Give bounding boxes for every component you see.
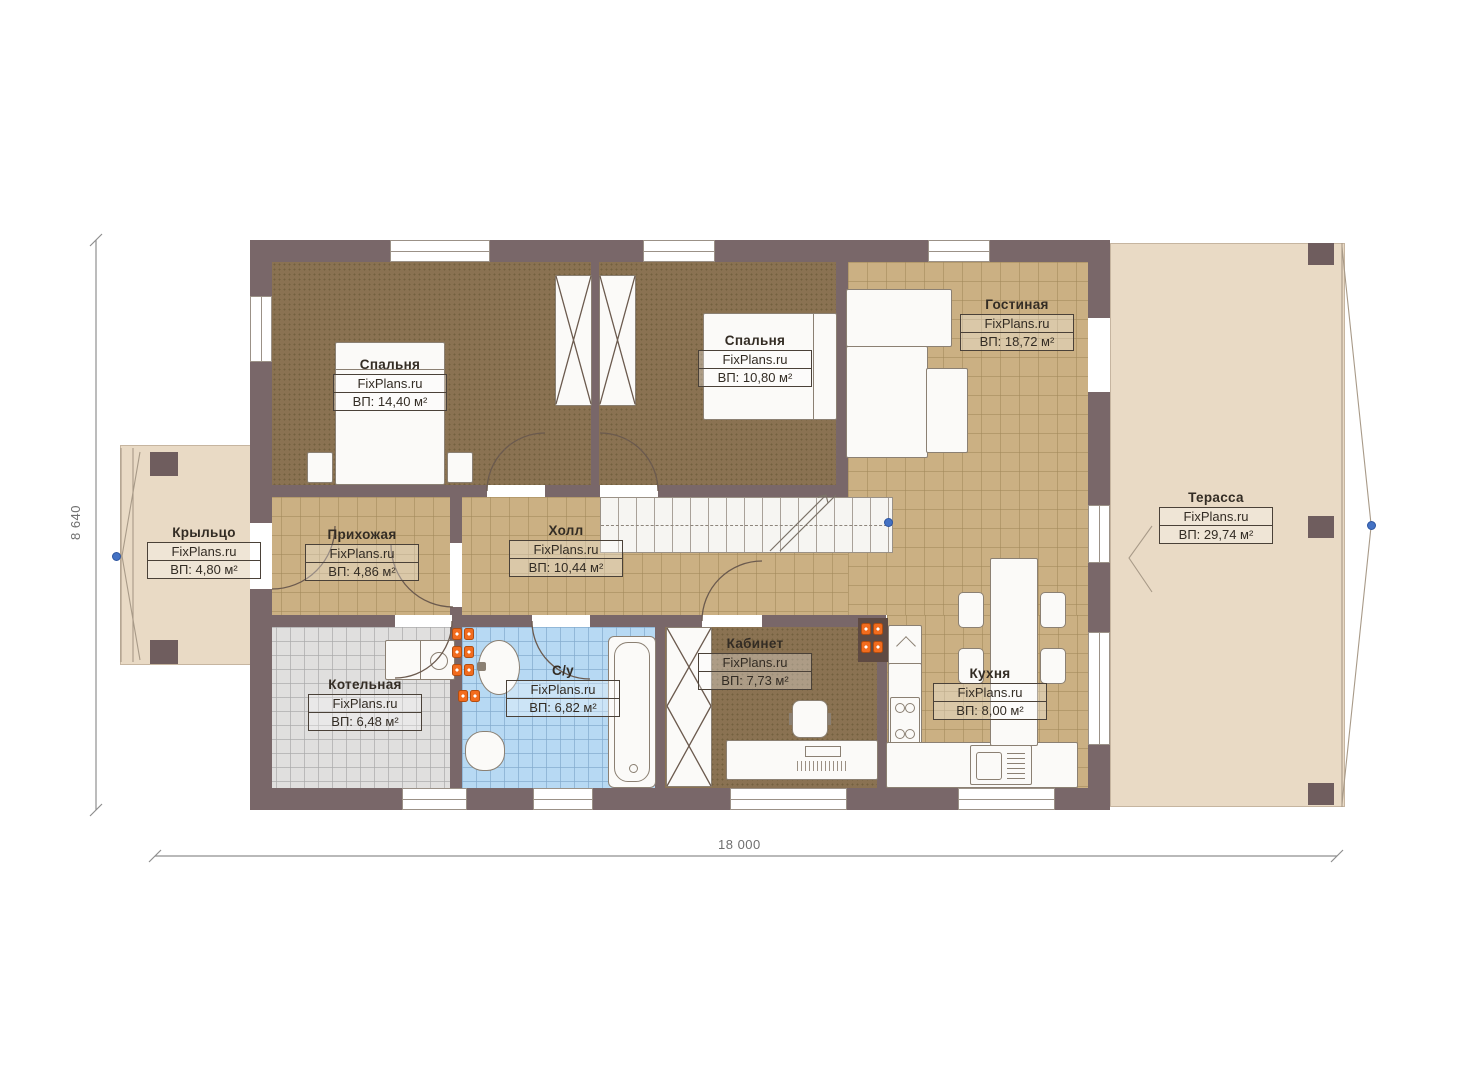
- room-area: ВП: 10,80 м²: [699, 369, 811, 386]
- terrace-post: [1308, 243, 1334, 265]
- room-area: ВП: 6,82 м²: [507, 699, 619, 716]
- chair: [958, 592, 984, 628]
- door-opening-bathroom: [532, 615, 590, 627]
- room-name: С/у: [506, 663, 620, 678]
- staircase: [600, 497, 893, 553]
- window: [402, 788, 467, 810]
- cooktop: [890, 697, 920, 745]
- porch-post: [150, 640, 178, 664]
- room-name: Прихожая: [305, 527, 419, 542]
- terrace-post: [1308, 783, 1334, 805]
- room-area: ВП: 29,74 м²: [1160, 526, 1272, 543]
- window: [533, 788, 593, 810]
- survey-marker: [884, 518, 893, 527]
- window: [928, 240, 990, 262]
- door-opening-office: [702, 615, 762, 627]
- room-name: Крыльцо: [147, 525, 261, 540]
- room-name: Терасса: [1159, 490, 1273, 505]
- wardrobe: [555, 275, 592, 406]
- brand-text: FixPlans.ru: [507, 681, 619, 699]
- room-label-office: Кабинет FixPlans.ru ВП: 7,73 м²: [698, 636, 812, 690]
- radiator: [452, 628, 474, 640]
- window: [730, 788, 847, 810]
- wall-bedrooms-hall: [262, 485, 848, 497]
- window: [958, 788, 1055, 810]
- window: [1088, 632, 1110, 745]
- room-area: ВП: 4,86 м²: [306, 563, 418, 580]
- toilet: [465, 731, 505, 771]
- brand-text: FixPlans.ru: [334, 375, 446, 393]
- room-name: Кухня: [933, 666, 1047, 681]
- porch-post: [150, 452, 178, 476]
- room-label-hall: Холл FixPlans.ru ВП: 10,44 м²: [509, 523, 623, 577]
- room-area: ВП: 8,00 м²: [934, 702, 1046, 719]
- dimension-height-label: 8 640: [68, 505, 83, 540]
- brand-text: FixPlans.ru: [934, 684, 1046, 702]
- brand-text: FixPlans.ru: [510, 541, 622, 559]
- room-area: ВП: 18,72 м²: [961, 333, 1073, 350]
- door-opening-terrace: [1088, 318, 1110, 392]
- survey-marker: [1367, 521, 1376, 530]
- terrace-post: [1308, 516, 1334, 538]
- boiler-unit: [385, 640, 455, 680]
- window: [1088, 505, 1110, 563]
- room-name: Холл: [509, 523, 623, 538]
- dimension-width-label: 18 000: [718, 837, 761, 852]
- kitchen-cabinet: [888, 625, 922, 667]
- door-opening-bedroom1: [487, 485, 545, 497]
- radiator: [452, 646, 474, 658]
- window: [250, 296, 272, 362]
- brand-text: FixPlans.ru: [309, 695, 421, 713]
- room-area: ВП: 6,48 м²: [309, 713, 421, 730]
- burner-knobs: [861, 641, 883, 653]
- sofa: [846, 346, 928, 458]
- wardrobe: [599, 275, 636, 406]
- window: [643, 240, 715, 262]
- coffee-table: [926, 368, 968, 453]
- brand-text: FixPlans.ru: [148, 543, 260, 561]
- room-area: ВП: 14,40 м²: [334, 393, 446, 410]
- office-chair: [792, 700, 828, 738]
- room-label-entry-hall: Прихожая FixPlans.ru ВП: 4,86 м²: [305, 527, 419, 581]
- burner-knobs: [861, 623, 883, 635]
- radiator: [458, 690, 480, 702]
- room-area: ВП: 4,80 м²: [148, 561, 260, 578]
- brand-text: FixPlans.ru: [699, 351, 811, 369]
- window: [390, 240, 490, 262]
- brand-text: FixPlans.ru: [961, 315, 1073, 333]
- room-area: ВП: 7,73 м²: [699, 672, 811, 689]
- room-label-living: Гостиная FixPlans.ru ВП: 18,72 м²: [960, 297, 1074, 351]
- nightstand: [447, 452, 473, 483]
- wall-bathroom-office: [655, 627, 665, 788]
- room-label-terrace: Терасса FixPlans.ru ВП: 29,74 м²: [1159, 490, 1273, 544]
- room-label-porch: Крыльцо FixPlans.ru ВП: 4,80 м²: [147, 525, 261, 579]
- nightstand: [307, 452, 333, 483]
- room-name: Котельная: [308, 677, 422, 692]
- door-opening-entryhall: [450, 543, 462, 607]
- chair: [1040, 592, 1066, 628]
- room-label-bedroom-1: Спальня FixPlans.ru ВП: 14,40 м²: [333, 357, 447, 411]
- room-name: Спальня: [333, 357, 447, 372]
- room-name: Спальня: [698, 333, 812, 348]
- wall-bedroom1-bedroom2: [591, 262, 599, 497]
- room-label-bedroom-2: Спальня FixPlans.ru ВП: 10,80 м²: [698, 333, 812, 387]
- door-opening-bedroom2: [600, 485, 658, 497]
- room-name: Кабинет: [698, 636, 812, 651]
- room-label-boiler: Котельная FixPlans.ru ВП: 6,48 м²: [308, 677, 422, 731]
- brand-text: FixPlans.ru: [1160, 508, 1272, 526]
- room-label-kitchen: Кухня FixPlans.ru ВП: 8,00 м²: [933, 666, 1047, 720]
- floor-plan: Спальня FixPlans.ru ВП: 14,40 м² Спальня…: [0, 0, 1474, 1080]
- radiator: [452, 664, 474, 676]
- brand-text: FixPlans.ru: [306, 545, 418, 563]
- room-area: ВП: 10,44 м²: [510, 559, 622, 576]
- room-label-bathroom: С/у FixPlans.ru ВП: 6,82 м²: [506, 663, 620, 717]
- sofa: [846, 289, 952, 347]
- room-name: Гостиная: [960, 297, 1074, 312]
- kitchen-sink: [970, 745, 1032, 785]
- door-opening-boiler: [395, 615, 452, 627]
- survey-marker: [112, 552, 121, 561]
- desk: [726, 740, 878, 780]
- brand-text: FixPlans.ru: [699, 654, 811, 672]
